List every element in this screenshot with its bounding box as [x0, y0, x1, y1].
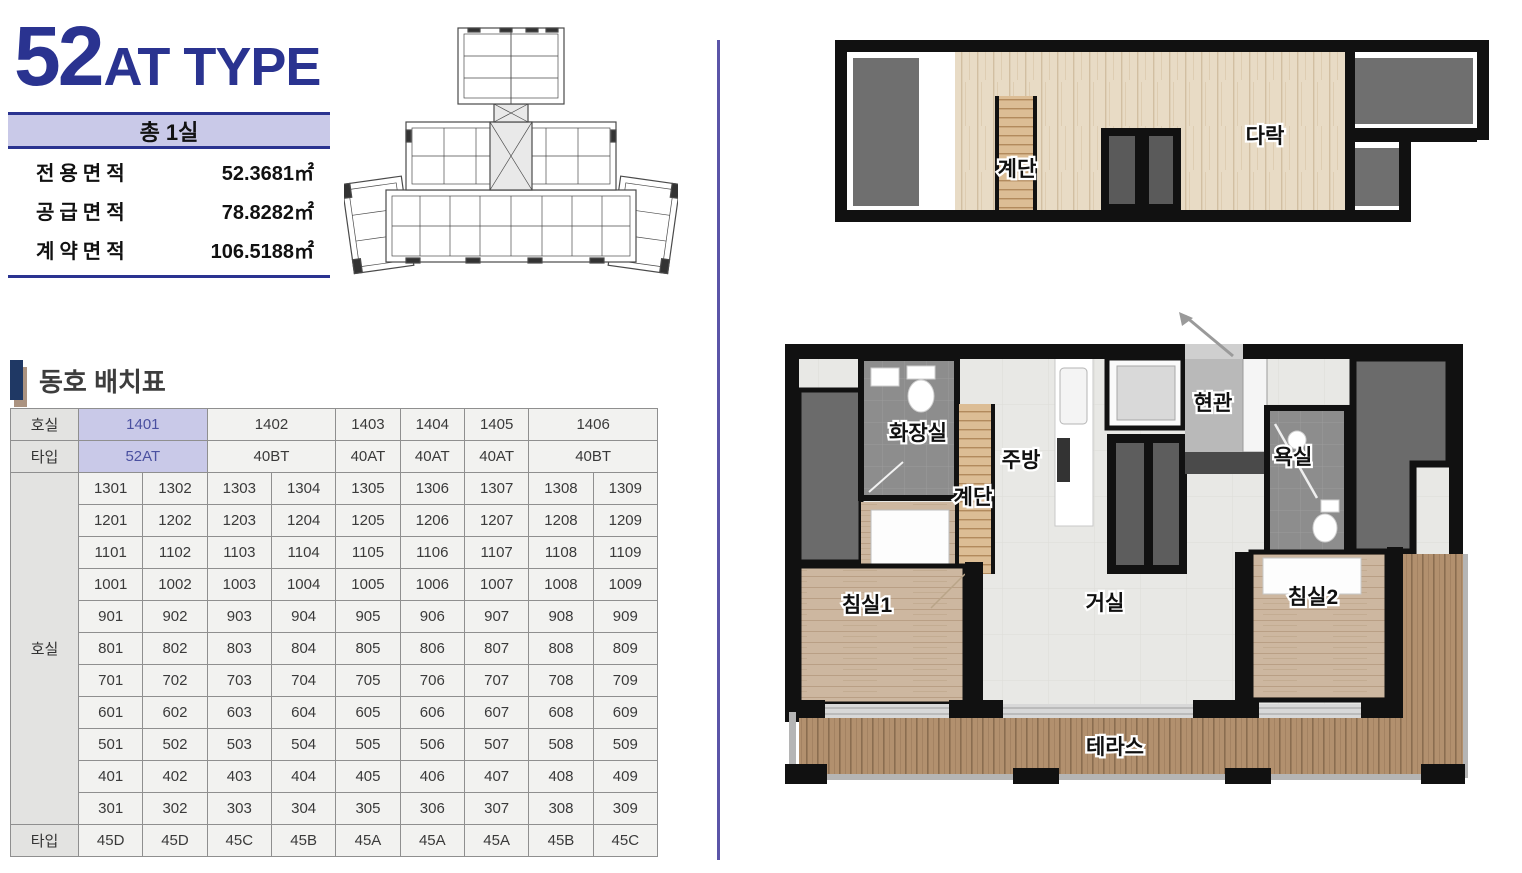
unit-header-cell: 40AT [464, 441, 528, 473]
outer-wall-left [785, 344, 799, 712]
room-number-cell: 1304 [271, 473, 335, 505]
row-label-cell: 타입 [11, 441, 79, 473]
toilet-label: 화장실 [889, 422, 947, 445]
room-number-cell: 1103 [207, 537, 271, 569]
room-number-cell: 504 [271, 729, 335, 761]
room-number-cell: 703 [207, 665, 271, 697]
room-number-cell: 708 [529, 665, 593, 697]
room-number-cell: 409 [593, 761, 657, 793]
wardrobe [871, 510, 949, 568]
room-number-cell: 907 [464, 601, 528, 633]
row-label-cell: 호실 [11, 473, 79, 825]
room-number-cell: 803 [207, 633, 271, 665]
room-number-cell: 408 [529, 761, 593, 793]
building-middle-tier [406, 122, 616, 190]
room-number-cell: 1301 [79, 473, 143, 505]
room-number-cell: 705 [336, 665, 400, 697]
type-cell: 45A [464, 825, 528, 857]
type-suffix: AT TYPE [103, 40, 320, 94]
attic-label: 다락 [1246, 125, 1285, 148]
room-number-cell: 1008 [529, 569, 593, 601]
room-number-cell: 707 [464, 665, 528, 697]
bath-toilet-icon [1313, 514, 1337, 542]
terrace-label: 테라스 [1086, 736, 1144, 759]
room-number-cell: 609 [593, 697, 657, 729]
room-number-cell: 603 [207, 697, 271, 729]
toilet-tank-icon [907, 366, 935, 379]
room-number-cell: 506 [400, 729, 464, 761]
attic-void-left [853, 58, 919, 206]
room-number-cell: 806 [400, 633, 464, 665]
bedroom1-label: 침실1 [842, 594, 893, 617]
room-number-cell: 308 [529, 793, 593, 825]
room-number-cell: 309 [593, 793, 657, 825]
room-number-cell: 302 [143, 793, 207, 825]
room-number-cell: 406 [400, 761, 464, 793]
highlighted-unit-cell: 1401 [79, 409, 208, 441]
room-number-cell: 301 [79, 793, 143, 825]
room-number-cell: 608 [529, 697, 593, 729]
room-number-cell: 1005 [336, 569, 400, 601]
room-number-cell: 307 [464, 793, 528, 825]
section-header: 동호 배치표 [10, 360, 166, 401]
room-number-cell: 405 [336, 761, 400, 793]
room-number-cell: 1307 [464, 473, 528, 505]
building-bottom-tier [386, 190, 636, 263]
entrance-door-gap [1185, 344, 1243, 359]
room-number-cell: 1202 [143, 505, 207, 537]
attic-stairs [999, 96, 1033, 210]
building-top-block [458, 28, 564, 104]
sink-icon [871, 368, 899, 386]
type-cell: 45D [79, 825, 143, 857]
shoe-cabinet [1243, 358, 1267, 452]
row-label-cell: 타입 [11, 825, 79, 857]
room-number-cell: 906 [400, 601, 464, 633]
room-number-cell: 709 [593, 665, 657, 697]
total-rooms-banner: 총 1실 [8, 112, 330, 149]
room-number-cell: 809 [593, 633, 657, 665]
type-cell: 45A [400, 825, 464, 857]
stove-icon [1057, 438, 1070, 482]
room-number-cell: 303 [207, 793, 271, 825]
area-value: 106.5188㎡ [211, 235, 314, 264]
type-cell: 45A [336, 825, 400, 857]
attic-stairs-label: 계단 [998, 158, 1037, 181]
room-number-cell: 903 [207, 601, 271, 633]
room-number-cell: 501 [79, 729, 143, 761]
room-number-cell: 402 [143, 761, 207, 793]
room-number-cell: 909 [593, 601, 657, 633]
toilet-icon [908, 380, 934, 412]
type-number: 52 [14, 14, 101, 98]
room-number-cell: 807 [464, 633, 528, 665]
entrance-label: 현관 [1194, 392, 1233, 415]
area-row: 공급면적 78.8282㎡ [8, 191, 330, 230]
bedroom1 [799, 566, 965, 704]
area-row: 계약면적 106.5188㎡ [8, 230, 330, 269]
room-number-cell: 1207 [464, 505, 528, 537]
type-cell: 45D [143, 825, 207, 857]
room-number-cell: 1306 [400, 473, 464, 505]
room-number-cell: 407 [464, 761, 528, 793]
room-number-cell: 1209 [593, 505, 657, 537]
unit-header-cell: 40BT [529, 441, 658, 473]
room-number-cell: 1003 [207, 569, 271, 601]
highlighted-unit-cell: 52AT [79, 441, 208, 473]
room-number-cell: 601 [79, 697, 143, 729]
unit-header-cell: 40AT [336, 441, 400, 473]
attic-void-right [1355, 58, 1473, 124]
stairs-label: 계단 [954, 486, 993, 509]
attic-void-small [1355, 148, 1401, 206]
room-number-cell: 901 [79, 601, 143, 633]
unit-header-cell: 1405 [464, 409, 528, 441]
room-number-cell: 507 [464, 729, 528, 761]
room-number-cell: 905 [336, 601, 400, 633]
row-label-cell: 호실 [11, 409, 79, 441]
window-band [799, 704, 1387, 718]
room-number-cell: 1006 [400, 569, 464, 601]
room-number-cell: 1009 [593, 569, 657, 601]
room-number-cell: 704 [271, 665, 335, 697]
outer-wall-top [785, 344, 1185, 359]
room-number-cell: 509 [593, 729, 657, 761]
page: 52 AT TYPE 총 1실 전용면적 52.3681㎡ 공급면적 78.82… [0, 0, 1522, 873]
room-number-cell: 1107 [464, 537, 528, 569]
section-bar-icon [10, 360, 25, 401]
room-number-cell: 1308 [529, 473, 593, 505]
unit-header-cell: 40BT [207, 441, 336, 473]
bathroom-label: 욕실 [1274, 446, 1313, 469]
room-number-cell: 401 [79, 761, 143, 793]
unit-header-cell: 1406 [529, 409, 658, 441]
room-number-cell: 304 [271, 793, 335, 825]
room-number-cell: 505 [336, 729, 400, 761]
room-number-cell: 306 [400, 793, 464, 825]
area-table: 전용면적 52.3681㎡ 공급면적 78.8282㎡ 계약면적 106.518… [8, 152, 330, 278]
room-number-cell: 702 [143, 665, 207, 697]
room-number-cell: 1302 [143, 473, 207, 505]
room-number-cell: 1204 [271, 505, 335, 537]
attic-floor-plan: 계단 다락 [833, 36, 1493, 228]
bedroom2-label: 침실2 [1288, 586, 1338, 609]
room-number-cell: 808 [529, 633, 593, 665]
type-cell: 45C [593, 825, 657, 857]
entrance-mat [1185, 452, 1269, 474]
room-number-cell: 1007 [464, 569, 528, 601]
type-cell: 45B [529, 825, 593, 857]
section-title: 동호 배치표 [39, 362, 166, 399]
room-number-cell: 1203 [207, 505, 271, 537]
room-number-cell: 801 [79, 633, 143, 665]
room-number-cell: 1106 [400, 537, 464, 569]
kitchen-sink-icon [1060, 368, 1087, 424]
room-number-cell: 404 [271, 761, 335, 793]
room-number-cell: 1206 [400, 505, 464, 537]
page-title: 52 AT TYPE [14, 14, 334, 98]
room-number-cell: 305 [336, 793, 400, 825]
room-number-cell: 1305 [336, 473, 400, 505]
room-number-cell: 502 [143, 729, 207, 761]
room-number-cell: 403 [207, 761, 271, 793]
outer-wall-right [1449, 344, 1463, 554]
room-number-cell: 1105 [336, 537, 400, 569]
room-number-cell: 1004 [271, 569, 335, 601]
area-value: 52.3681㎡ [222, 157, 314, 186]
washer-icon [1117, 366, 1175, 420]
room-number-cell: 1104 [271, 537, 335, 569]
unit-header-cell: 1403 [336, 409, 400, 441]
type-cell: 45C [207, 825, 271, 857]
room-number-cell: 607 [464, 697, 528, 729]
room-number-cell: 508 [529, 729, 593, 761]
living-label: 거실 [1086, 592, 1125, 615]
area-value: 78.8282㎡ [222, 196, 314, 225]
room-number-cell: 606 [400, 697, 464, 729]
room-number-cell: 904 [271, 601, 335, 633]
unit-header-cell: 1402 [207, 409, 336, 441]
closet-left [799, 390, 861, 562]
room-number-cell: 1303 [207, 473, 271, 505]
area-label: 전용면적 [36, 157, 130, 186]
room-number-cell: 1101 [79, 537, 143, 569]
room-number-cell: 602 [143, 697, 207, 729]
unit-table: 호실140114021403140414051406타입52AT40BT40AT… [10, 408, 658, 857]
room-number-cell: 1109 [593, 537, 657, 569]
room-number-cell: 1205 [336, 505, 400, 537]
room-number-cell: 605 [336, 697, 400, 729]
room-number-cell: 902 [143, 601, 207, 633]
area-row: 전용면적 52.3681㎡ [8, 152, 330, 191]
building-connector [494, 104, 528, 122]
main-floor-plan: 화장실 계단 주방 현관 욕실 침실1 거실 침실2 테라스 [773, 312, 1495, 836]
vertical-divider [717, 40, 720, 860]
kitchen-label: 주방 [1002, 449, 1041, 472]
area-label: 공급면적 [36, 196, 130, 225]
room-number-cell: 1208 [529, 505, 593, 537]
room-number-cell: 701 [79, 665, 143, 697]
room-number-cell: 1309 [593, 473, 657, 505]
area-label: 계약면적 [36, 235, 130, 264]
room-number-cell: 1201 [79, 505, 143, 537]
room-number-cell: 804 [271, 633, 335, 665]
room-number-cell: 908 [529, 601, 593, 633]
room-number-cell: 805 [336, 633, 400, 665]
building-overview-plan [344, 20, 678, 286]
room-number-cell: 1001 [79, 569, 143, 601]
room-number-cell: 706 [400, 665, 464, 697]
room-number-cell: 1102 [143, 537, 207, 569]
unit-header-cell: 1404 [400, 409, 464, 441]
room-number-cell: 503 [207, 729, 271, 761]
room-number-cell: 1002 [143, 569, 207, 601]
unit-header-cell: 40AT [400, 441, 464, 473]
room-number-cell: 604 [271, 697, 335, 729]
room-number-cell: 802 [143, 633, 207, 665]
room-number-cell: 1108 [529, 537, 593, 569]
type-cell: 45B [271, 825, 335, 857]
